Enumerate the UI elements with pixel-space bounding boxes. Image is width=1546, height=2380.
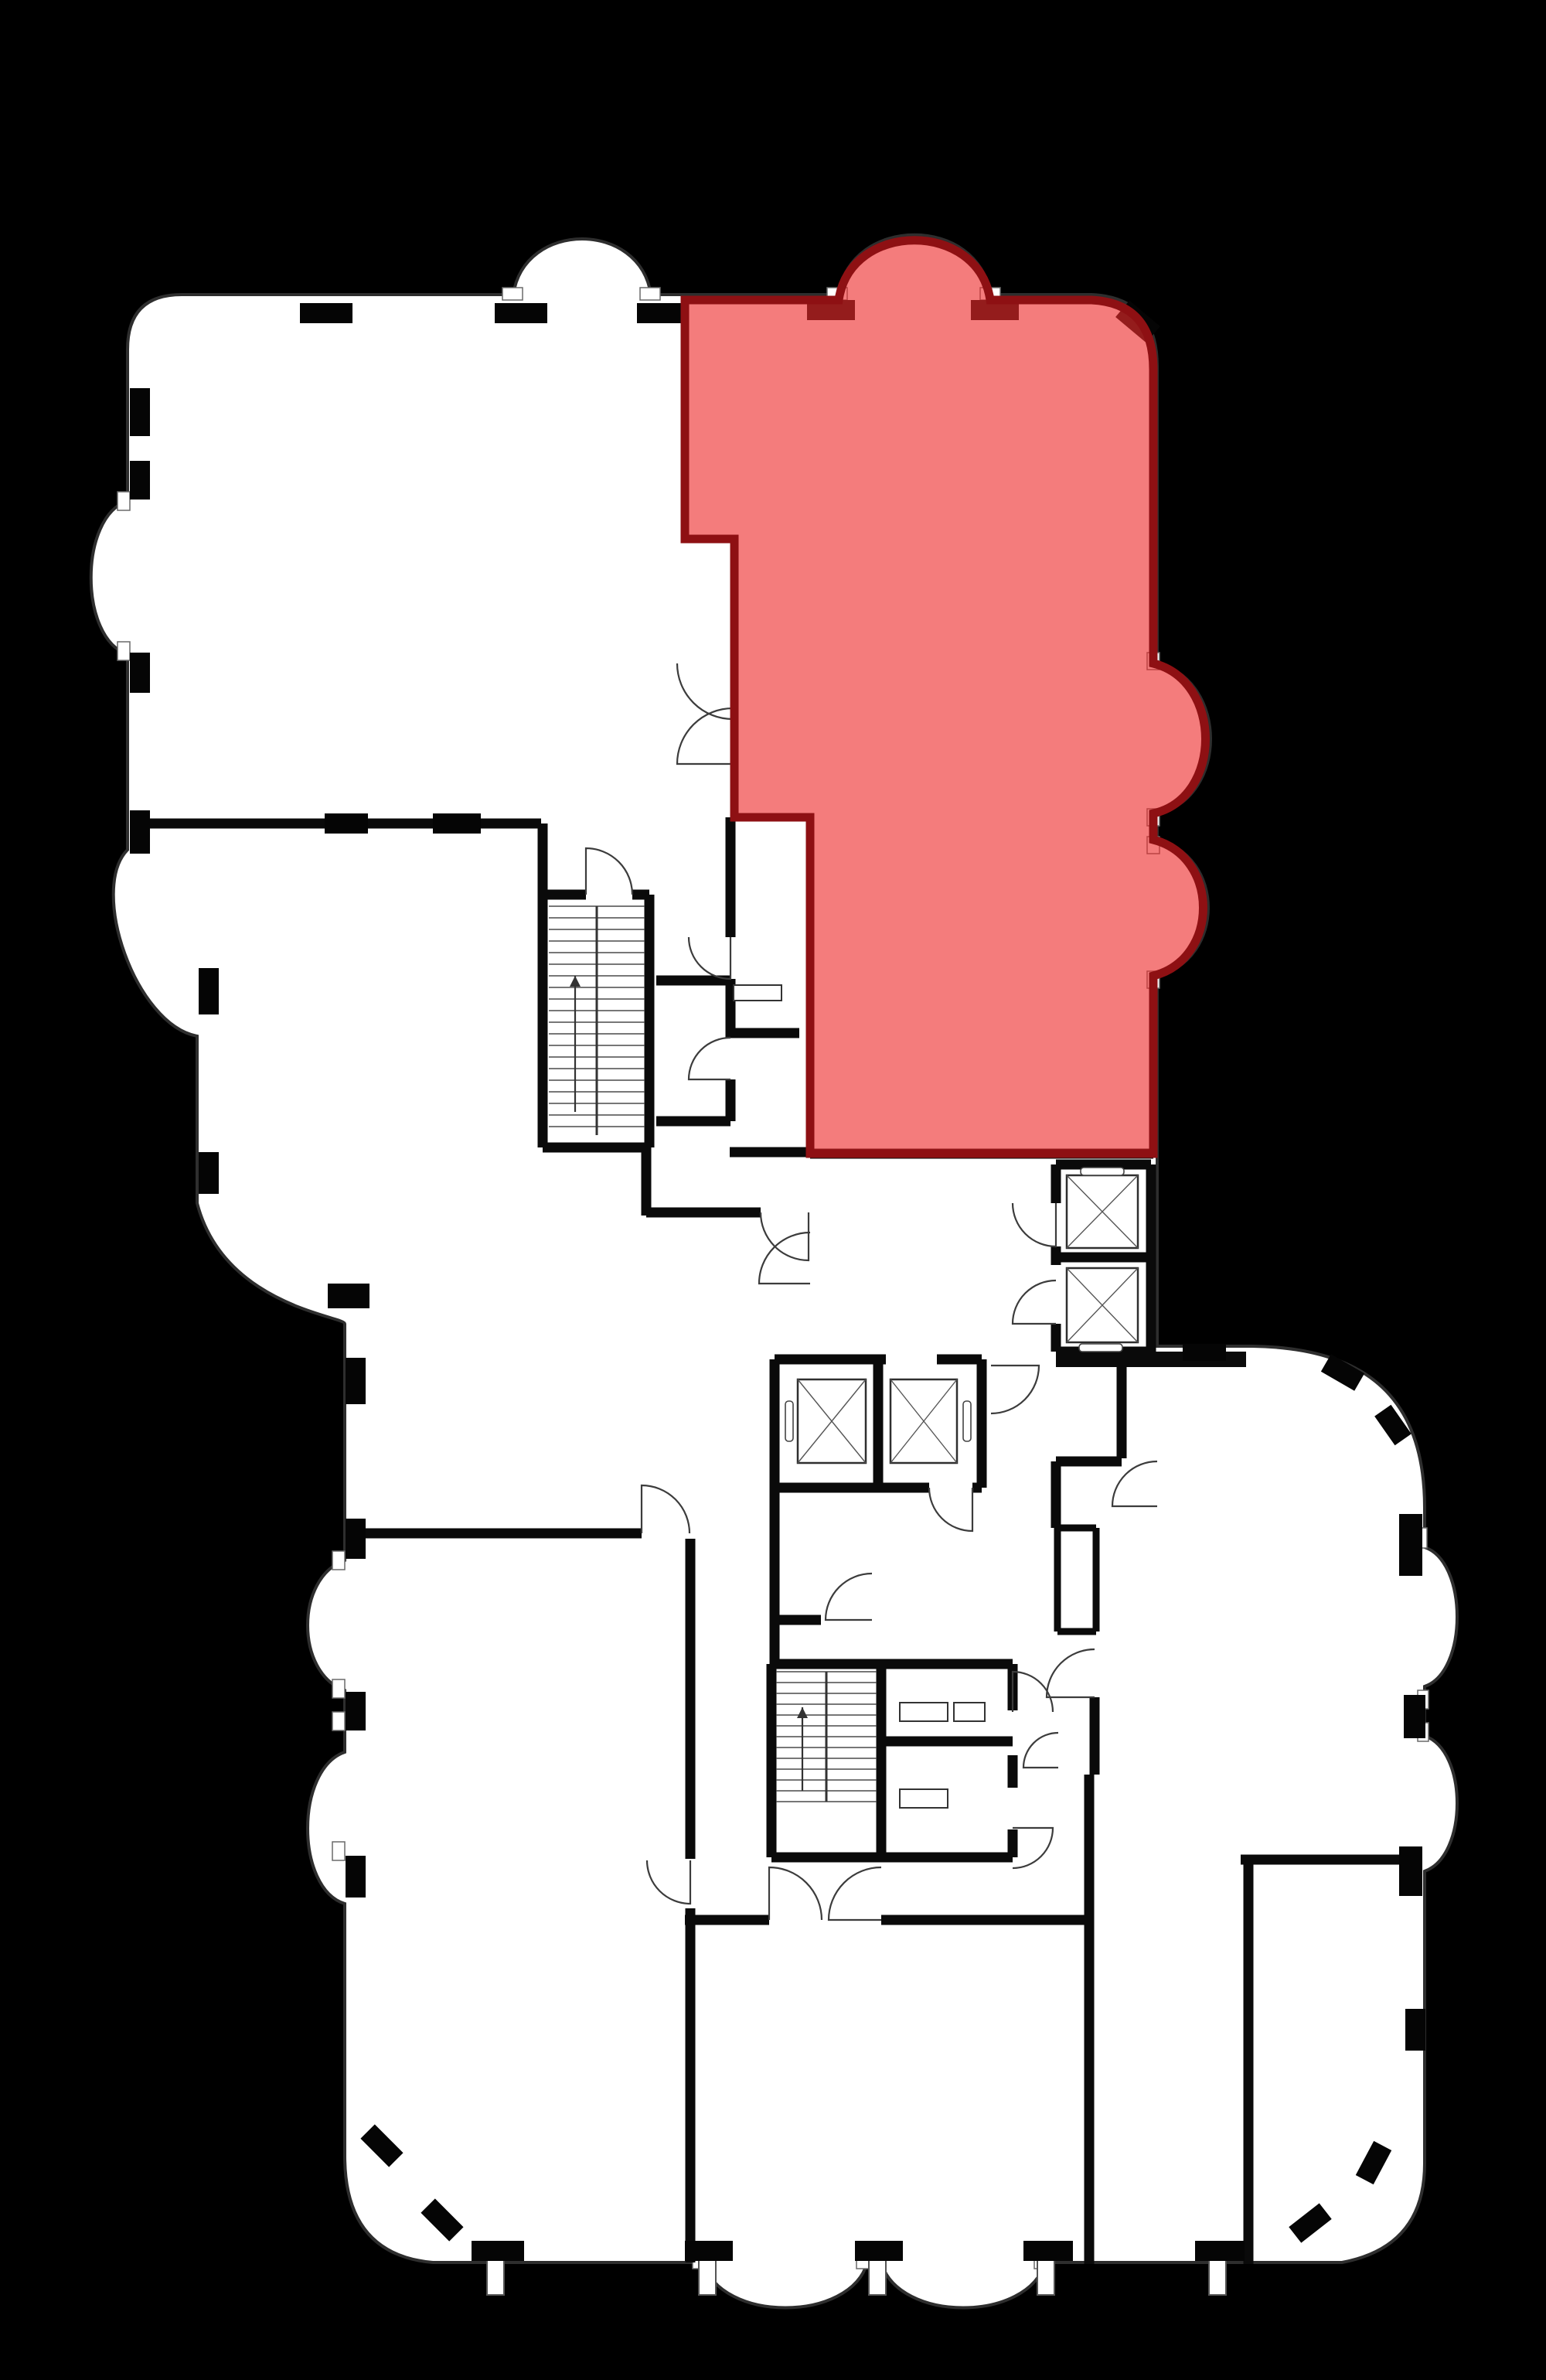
window-tick [332, 1842, 345, 1860]
column [433, 813, 481, 834]
column [130, 388, 150, 436]
column [855, 2241, 903, 2261]
elevator-door-slot [785, 1401, 793, 1441]
column [328, 1284, 369, 1308]
column [1183, 1344, 1226, 1361]
column [1023, 2241, 1073, 2261]
fixture [734, 985, 782, 1001]
window-tick [332, 1712, 345, 1730]
window-slot [1037, 2259, 1054, 2295]
window-slot [869, 2259, 886, 2295]
elevator-door-slot [1079, 1344, 1122, 1352]
window-tick [332, 1551, 345, 1570]
column [1195, 2241, 1245, 2261]
column [346, 1856, 366, 1898]
window-slot [1209, 2259, 1226, 2295]
window-tick [502, 288, 523, 300]
window-tick [117, 492, 130, 510]
column [1399, 1846, 1422, 1896]
column [472, 2241, 524, 2261]
column [495, 303, 547, 323]
column [130, 461, 150, 500]
column [346, 1692, 366, 1730]
fixture [900, 1789, 948, 1808]
column [130, 810, 150, 854]
floor-plan-canvas [0, 0, 1546, 2380]
column [346, 1358, 366, 1404]
column [1404, 1695, 1425, 1738]
column [199, 968, 219, 1014]
elevator-cab [890, 1379, 957, 1463]
elevator-door-slot [963, 1401, 971, 1441]
column [325, 813, 368, 834]
fixture [954, 1703, 985, 1721]
elevator-cab [1067, 1268, 1138, 1342]
column [130, 653, 150, 693]
window-slot [699, 2259, 716, 2295]
column [1405, 2009, 1425, 2051]
column [685, 2241, 733, 2261]
window-tick [640, 288, 660, 300]
fixture [900, 1703, 948, 1721]
elevator-cab [1067, 1175, 1138, 1248]
window-tick [117, 642, 130, 660]
window-tick [332, 1679, 345, 1698]
floor-plan-page [0, 0, 1546, 2380]
column [346, 1519, 366, 1559]
column [300, 303, 352, 323]
window-slot [487, 2259, 504, 2295]
column [199, 1152, 219, 1194]
elevator-door-slot [1081, 1168, 1124, 1175]
column [1399, 1514, 1422, 1576]
floor-plan-svg [0, 0, 1546, 2380]
elevator-cab [798, 1379, 866, 1463]
